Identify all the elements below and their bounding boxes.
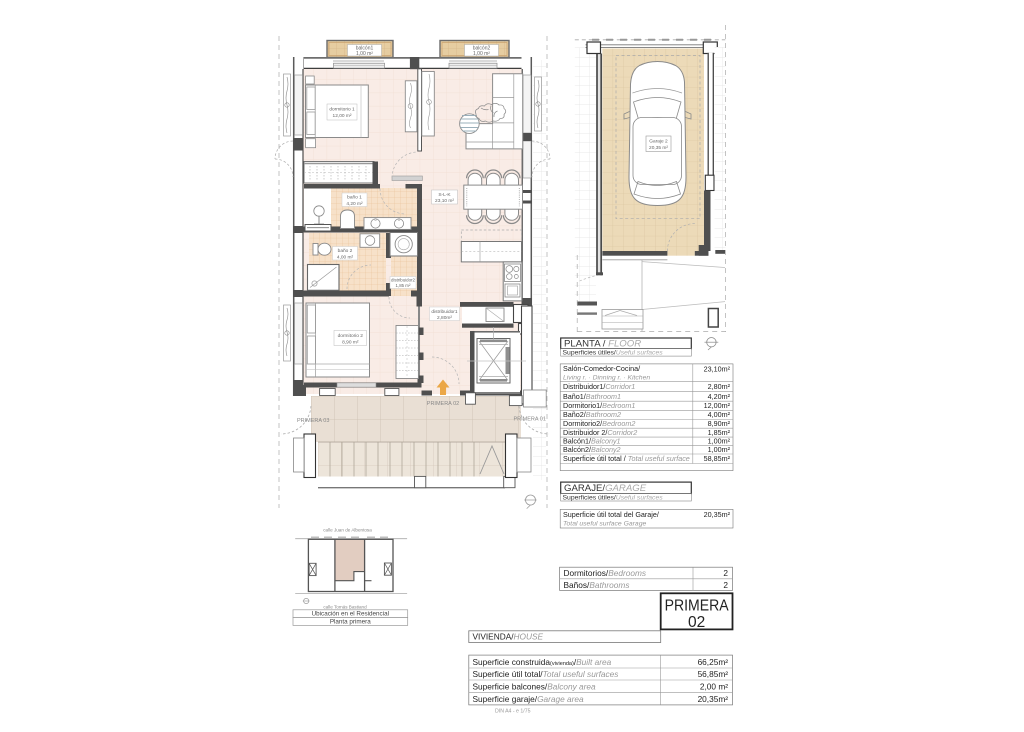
- svg-text:distribuidor2: distribuidor2: [391, 278, 415, 283]
- svg-text:Superficie construida(vivienda: Superficie construida(vivienda)/Built ar…: [473, 657, 612, 667]
- svg-text:2,80m²: 2,80m²: [437, 315, 452, 321]
- svg-text:PRIMERA 01: PRIMERA 01: [514, 417, 546, 423]
- svg-text:Baño2/Bathroom2: Baño2/Bathroom2: [563, 410, 621, 419]
- svg-text:66,25m²: 66,25m²: [698, 657, 729, 667]
- svg-text:Total useful surface Garage: Total useful surface Garage: [563, 520, 646, 527]
- svg-text:dormitorio 2: dormitorio 2: [338, 333, 364, 339]
- svg-text:PLANTA / FLOOR: PLANTA / FLOOR: [564, 338, 641, 349]
- svg-text:4,00m²: 4,00m²: [708, 410, 731, 419]
- svg-text:Distribuidor1/Corridor1: Distribuidor1/Corridor1: [563, 382, 635, 391]
- svg-text:Superficie útil total/Total us: Superficie útil total/Total useful surfa…: [473, 669, 619, 679]
- svg-text:Distribuidor 2/Corridor2: Distribuidor 2/Corridor2: [563, 428, 637, 437]
- svg-text:Living r. · Dinning r. · Kitch: Living r. · Dinning r. · Kitchen: [563, 375, 650, 382]
- svg-text:Dormitorio1/Bedroom1: Dormitorio1/Bedroom1: [563, 401, 635, 410]
- svg-text:1,85m²: 1,85m²: [708, 428, 731, 437]
- svg-text:Planta primera: Planta primera: [330, 618, 371, 625]
- svg-text:PRIMERA 03: PRIMERA 03: [297, 418, 329, 424]
- svg-text:Salón-Comedor-Cocina/: Salón-Comedor-Cocina/: [563, 364, 640, 373]
- svg-text:20,35m²: 20,35m²: [704, 510, 731, 519]
- svg-text:Balcón2/Balcony2: Balcón2/Balcony2: [563, 445, 621, 454]
- svg-text:23,10m²: 23,10m²: [704, 365, 731, 374]
- svg-text:Superficie garaje/Garage area: Superficie garaje/Garage area: [473, 694, 585, 704]
- svg-text:8,90m²: 8,90m²: [708, 419, 731, 428]
- svg-text:2,00 m²: 2,00 m²: [700, 681, 728, 691]
- svg-text:12,00 m²: 12,00 m²: [333, 113, 352, 119]
- svg-text:Garaje 2: Garaje 2: [649, 138, 668, 144]
- svg-text:Ubicación en el Residencial: Ubicación en el Residencial: [312, 611, 389, 618]
- svg-text:Superficie balcones/Balcony ar: Superficie balcones/Balcony area: [473, 681, 597, 691]
- svg-text:Superficie útil total / Total: Superficie útil total / Total useful sur…: [563, 454, 690, 463]
- svg-text:20,35m²: 20,35m²: [698, 694, 729, 704]
- svg-text:2: 2: [723, 568, 728, 578]
- svg-text:56,85m²: 56,85m²: [698, 669, 729, 679]
- svg-text:S-L-K: S-L-K: [438, 192, 451, 198]
- svg-text:Superficies útiles/Useful surf: Superficies útiles/Useful surfaces: [563, 494, 664, 501]
- svg-text:1,00m²: 1,00m²: [708, 445, 731, 454]
- svg-text:2,80m²: 2,80m²: [708, 382, 731, 391]
- svg-text:4,20m²: 4,20m²: [708, 392, 731, 401]
- svg-text:20,35 m²: 20,35 m²: [649, 145, 668, 151]
- svg-text:23,10 m²: 23,10 m²: [435, 198, 454, 204]
- svg-text:PRIMERA 02: PRIMERA 02: [427, 401, 459, 407]
- svg-text:Baño1/Bathroom1: Baño1/Bathroom1: [563, 392, 621, 401]
- svg-text:Dormitorios/Bedrooms: Dormitorios/Bedrooms: [564, 568, 647, 578]
- svg-text:2: 2: [723, 580, 728, 590]
- svg-text:1,85 m²: 1,85 m²: [396, 283, 411, 288]
- svg-text:1,00 m²: 1,00 m²: [356, 51, 373, 57]
- svg-text:12,00m²: 12,00m²: [704, 401, 731, 410]
- svg-text:baño 1: baño 1: [347, 195, 362, 201]
- svg-text:GARAJE/GARAGE: GARAJE/GARAGE: [564, 483, 647, 494]
- svg-text:baño 2: baño 2: [338, 248, 353, 254]
- svg-text:02: 02: [688, 614, 705, 631]
- svg-text:Superficies útiles/Useful surf: Superficies útiles/Useful surfaces: [563, 350, 664, 357]
- svg-text:calle Tomás Bastiand: calle Tomás Bastiand: [323, 604, 367, 609]
- svg-text:distribuidor1: distribuidor1: [431, 309, 457, 315]
- svg-text:58,85m²: 58,85m²: [704, 454, 731, 463]
- svg-text:4,00 m²: 4,00 m²: [337, 254, 354, 260]
- svg-text:1,00 m²: 1,00 m²: [473, 51, 490, 57]
- svg-text:VIVIENDA/HOUSE: VIVIENDA/HOUSE: [473, 632, 544, 642]
- svg-text:Superficie útil total del Gara: Superficie útil total del Garaje/: [563, 510, 659, 519]
- svg-text:Dormitorio2/Bedroom2: Dormitorio2/Bedroom2: [563, 419, 635, 428]
- svg-text:Baños/Bathrooms: Baños/Bathrooms: [564, 580, 630, 590]
- svg-text:4,20 m²: 4,20 m²: [346, 201, 363, 207]
- svg-text:calle Juan de Albentosa: calle Juan de Albentosa: [323, 528, 372, 533]
- svg-text:DIN A4 - e 1/75: DIN A4 - e 1/75: [495, 709, 531, 715]
- svg-text:8,90 m²: 8,90 m²: [342, 339, 359, 345]
- svg-text:PRIMERA: PRIMERA: [665, 598, 730, 615]
- svg-text:dormitorio 1: dormitorio 1: [329, 107, 355, 113]
